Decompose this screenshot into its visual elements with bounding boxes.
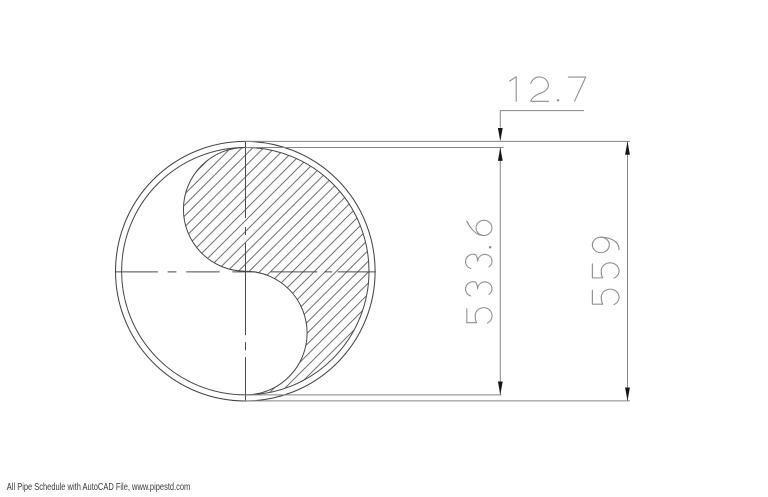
- svg-text:All Pipe Schedule with AutoCAD: All Pipe Schedule with AutoCAD File, www…: [7, 482, 191, 493]
